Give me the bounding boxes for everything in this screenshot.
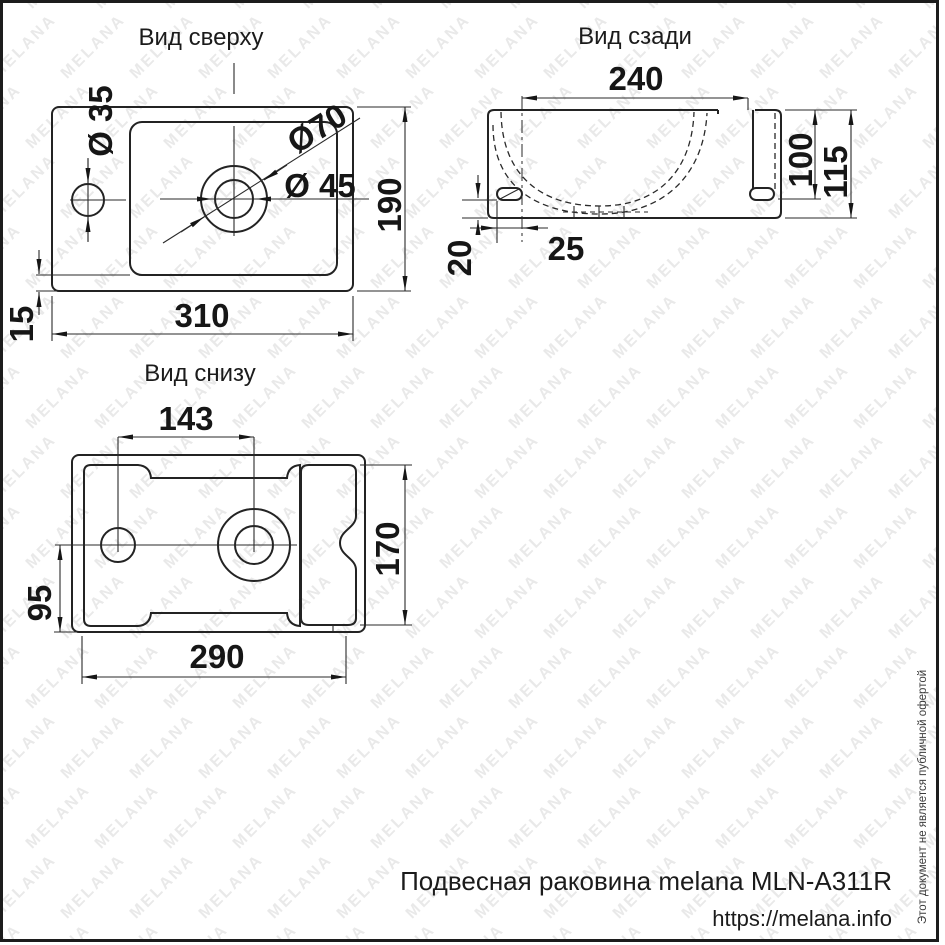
dim-bottom-depth: 170 <box>369 521 406 576</box>
dim-hole-spacing: 143 <box>158 400 213 437</box>
top-view-title: Вид сверху <box>139 24 264 51</box>
bottom-view-title: Вид снизу <box>144 360 255 387</box>
website-link[interactable]: https://melana.info <box>712 906 892 932</box>
bottom-view: Вид снизу <box>21 360 412 684</box>
dim-drain-inner-diameter: Ø 45 <box>284 167 356 204</box>
mounting-slot-right <box>750 188 774 200</box>
rear-hidden-drain <box>563 206 648 218</box>
dim-rim-offset: 15 <box>3 306 40 343</box>
dim-hole-to-edge: 95 <box>21 585 58 622</box>
legal-disclaimer: Этот документ не является публичной офер… <box>917 670 929 924</box>
dim-mounting-side-offset: 25 <box>548 230 585 267</box>
dim-bottom-width: 290 <box>189 638 244 675</box>
technical-drawing-page: MELANAMELANAMELANAMELANAMELANAMELANAMELA… <box>0 0 945 945</box>
dim-mounting-bottom-offset: 20 <box>441 240 478 277</box>
basin-hidden-contour-outer <box>493 113 707 214</box>
dim-mounting-height: 100 <box>782 132 819 187</box>
rear-view: Вид сзади <box>441 23 857 276</box>
dim-top-width: 310 <box>174 297 229 334</box>
rear-view-title: Вид сзади <box>578 23 692 50</box>
dim-mounting-span: 240 <box>608 60 663 97</box>
top-view: Вид сверху <box>3 24 411 342</box>
rear-view-body-outline <box>488 110 781 218</box>
dim-total-height: 115 <box>817 145 854 198</box>
basin-hidden-contour-inner <box>501 112 694 206</box>
sink-technical-drawing: Вид сверху <box>0 0 945 945</box>
product-title: Подвесная раковина melana MLN-A311R <box>400 866 892 897</box>
bottom-foot-pad <box>301 465 356 625</box>
dim-top-depth: 190 <box>371 177 408 232</box>
dim-faucet-diameter: Ø 35 <box>82 85 119 157</box>
dim-drain-outer-diameter: Ø70 <box>281 96 354 160</box>
